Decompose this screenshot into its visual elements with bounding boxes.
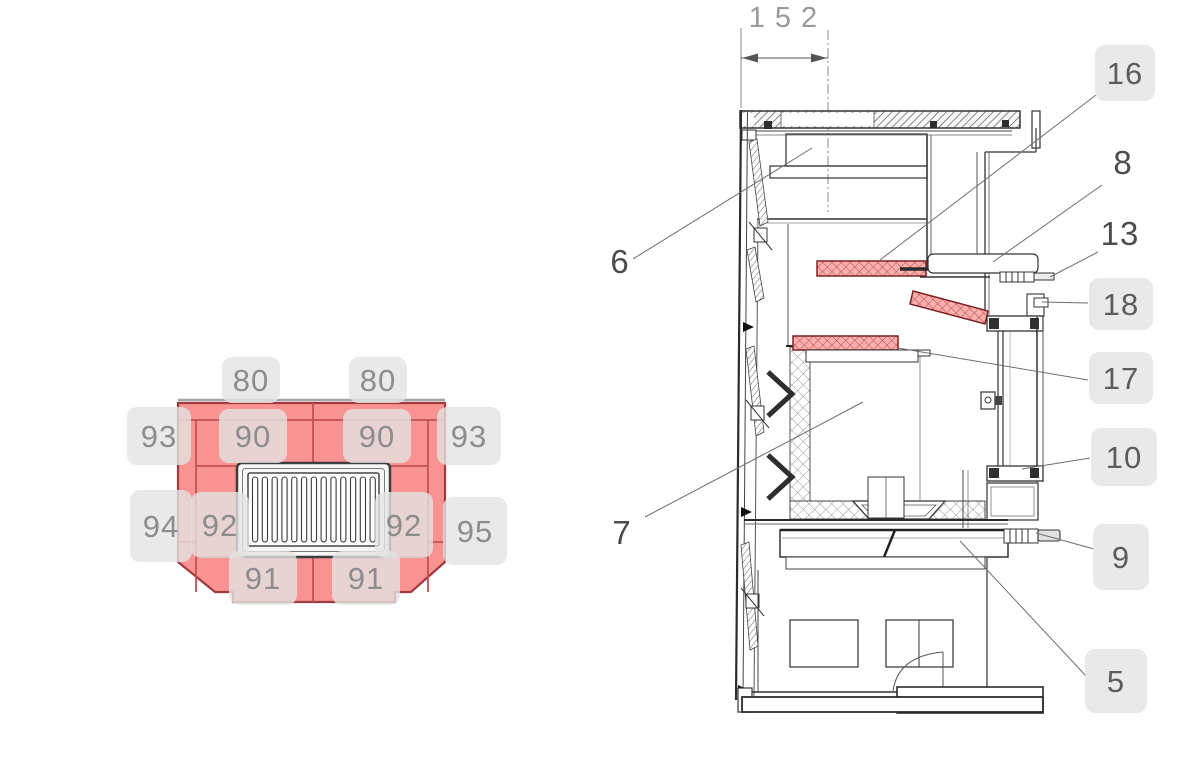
callout-text: 8 (1113, 146, 1132, 179)
callout-7: 7 (599, 503, 645, 561)
part-label-92-left: 92 (191, 492, 249, 558)
callout-text: 7 (612, 516, 631, 549)
lower-cabinet (758, 558, 987, 692)
callout-17: 17 (1089, 352, 1153, 404)
part-label-91-left: 91 (229, 551, 297, 605)
callout-text: 18 (1103, 289, 1139, 320)
part-label-80-left: 80 (222, 357, 280, 403)
part-label-93-right: 93 (437, 407, 501, 465)
callout-9: 9 (1093, 524, 1149, 590)
front-shelf (920, 254, 1054, 282)
part-label-text: 94 (143, 511, 179, 542)
part-label-94: 94 (130, 490, 192, 562)
firebox-floor (744, 470, 1008, 528)
part-label-90-right: 90 (343, 409, 411, 463)
part-label-text: 91 (348, 563, 384, 594)
callout-6: 6 (597, 232, 643, 290)
part-label-text: 93 (141, 421, 177, 452)
base-plinth (738, 687, 1043, 713)
part-label-90-left: 90 (219, 409, 287, 463)
callout-text: 17 (1103, 363, 1139, 394)
callout-8: 8 (1100, 133, 1146, 191)
callout-text: 6 (610, 245, 629, 278)
callout-text: 13 (1101, 217, 1140, 250)
diagram-lineart (0, 0, 1200, 781)
part-label-text: 95 (457, 516, 493, 547)
callout-text: 10 (1106, 442, 1142, 473)
door-assembly (981, 294, 1048, 520)
part-label-91-right: 91 (332, 551, 400, 605)
callout-18: 18 (1089, 278, 1153, 330)
leader-lines (633, 95, 1102, 676)
part-label-text: 90 (235, 421, 271, 452)
diagram-canvas: 152 80 80 93 90 90 93 94 92 92 95 91 91 … (0, 0, 1200, 781)
part-label-92-right: 92 (375, 492, 433, 558)
front-bands (780, 529, 1060, 569)
callout-10: 10 (1091, 428, 1157, 486)
callout-text: 9 (1112, 542, 1130, 573)
side-view (633, 28, 1102, 713)
callout-text: 5 (1107, 666, 1125, 697)
part-label-93-left: 93 (127, 407, 191, 465)
part-label-80-right: 80 (349, 357, 407, 403)
part-label-95: 95 (443, 497, 507, 565)
flue-collar (770, 134, 927, 178)
dimension-152-label: 152 (744, 4, 832, 33)
deflector-plate (910, 291, 988, 324)
callout-text: 16 (1107, 58, 1143, 89)
top-plate (740, 111, 1040, 148)
callout-16: 16 (1095, 45, 1155, 101)
part-label-text: 92 (202, 510, 238, 541)
part-label-text: 91 (245, 563, 281, 594)
part-label-text: 80 (233, 365, 269, 396)
grate (237, 463, 390, 557)
part-label-text: 93 (451, 421, 487, 452)
part-label-text: 80 (360, 365, 396, 396)
smoke-shelf (793, 336, 930, 362)
part-label-text: 92 (386, 510, 422, 541)
callout-13: 13 (1092, 206, 1148, 260)
part-label-text: 90 (359, 421, 395, 452)
callout-5: 5 (1085, 649, 1147, 713)
